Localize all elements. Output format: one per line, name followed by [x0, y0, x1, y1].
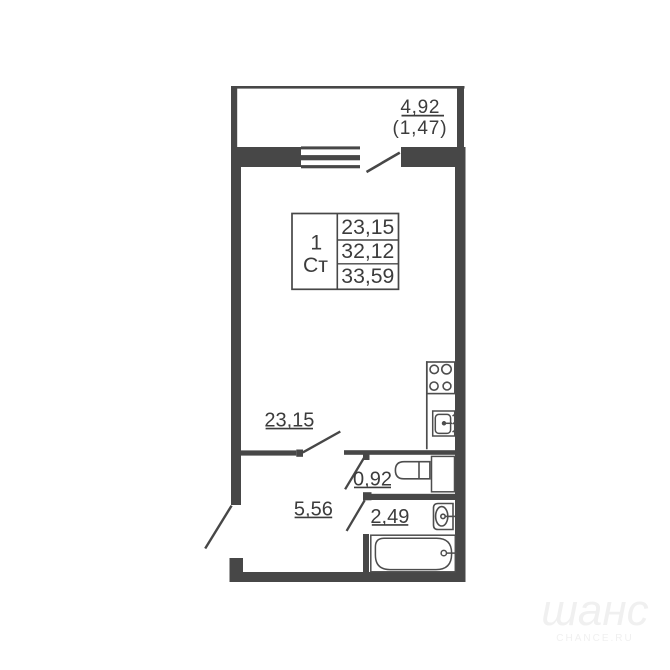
- svg-text:Ст: Ст: [303, 254, 328, 277]
- svg-text:(1,47): (1,47): [392, 118, 447, 139]
- svg-text:32,12: 32,12: [341, 240, 394, 263]
- svg-text:шанс: шанс: [541, 586, 648, 635]
- svg-text:CHANCE.RU: CHANCE.RU: [556, 633, 633, 644]
- svg-text:23,15: 23,15: [341, 216, 394, 239]
- svg-text:1: 1: [310, 231, 322, 254]
- svg-text:33,59: 33,59: [341, 265, 394, 288]
